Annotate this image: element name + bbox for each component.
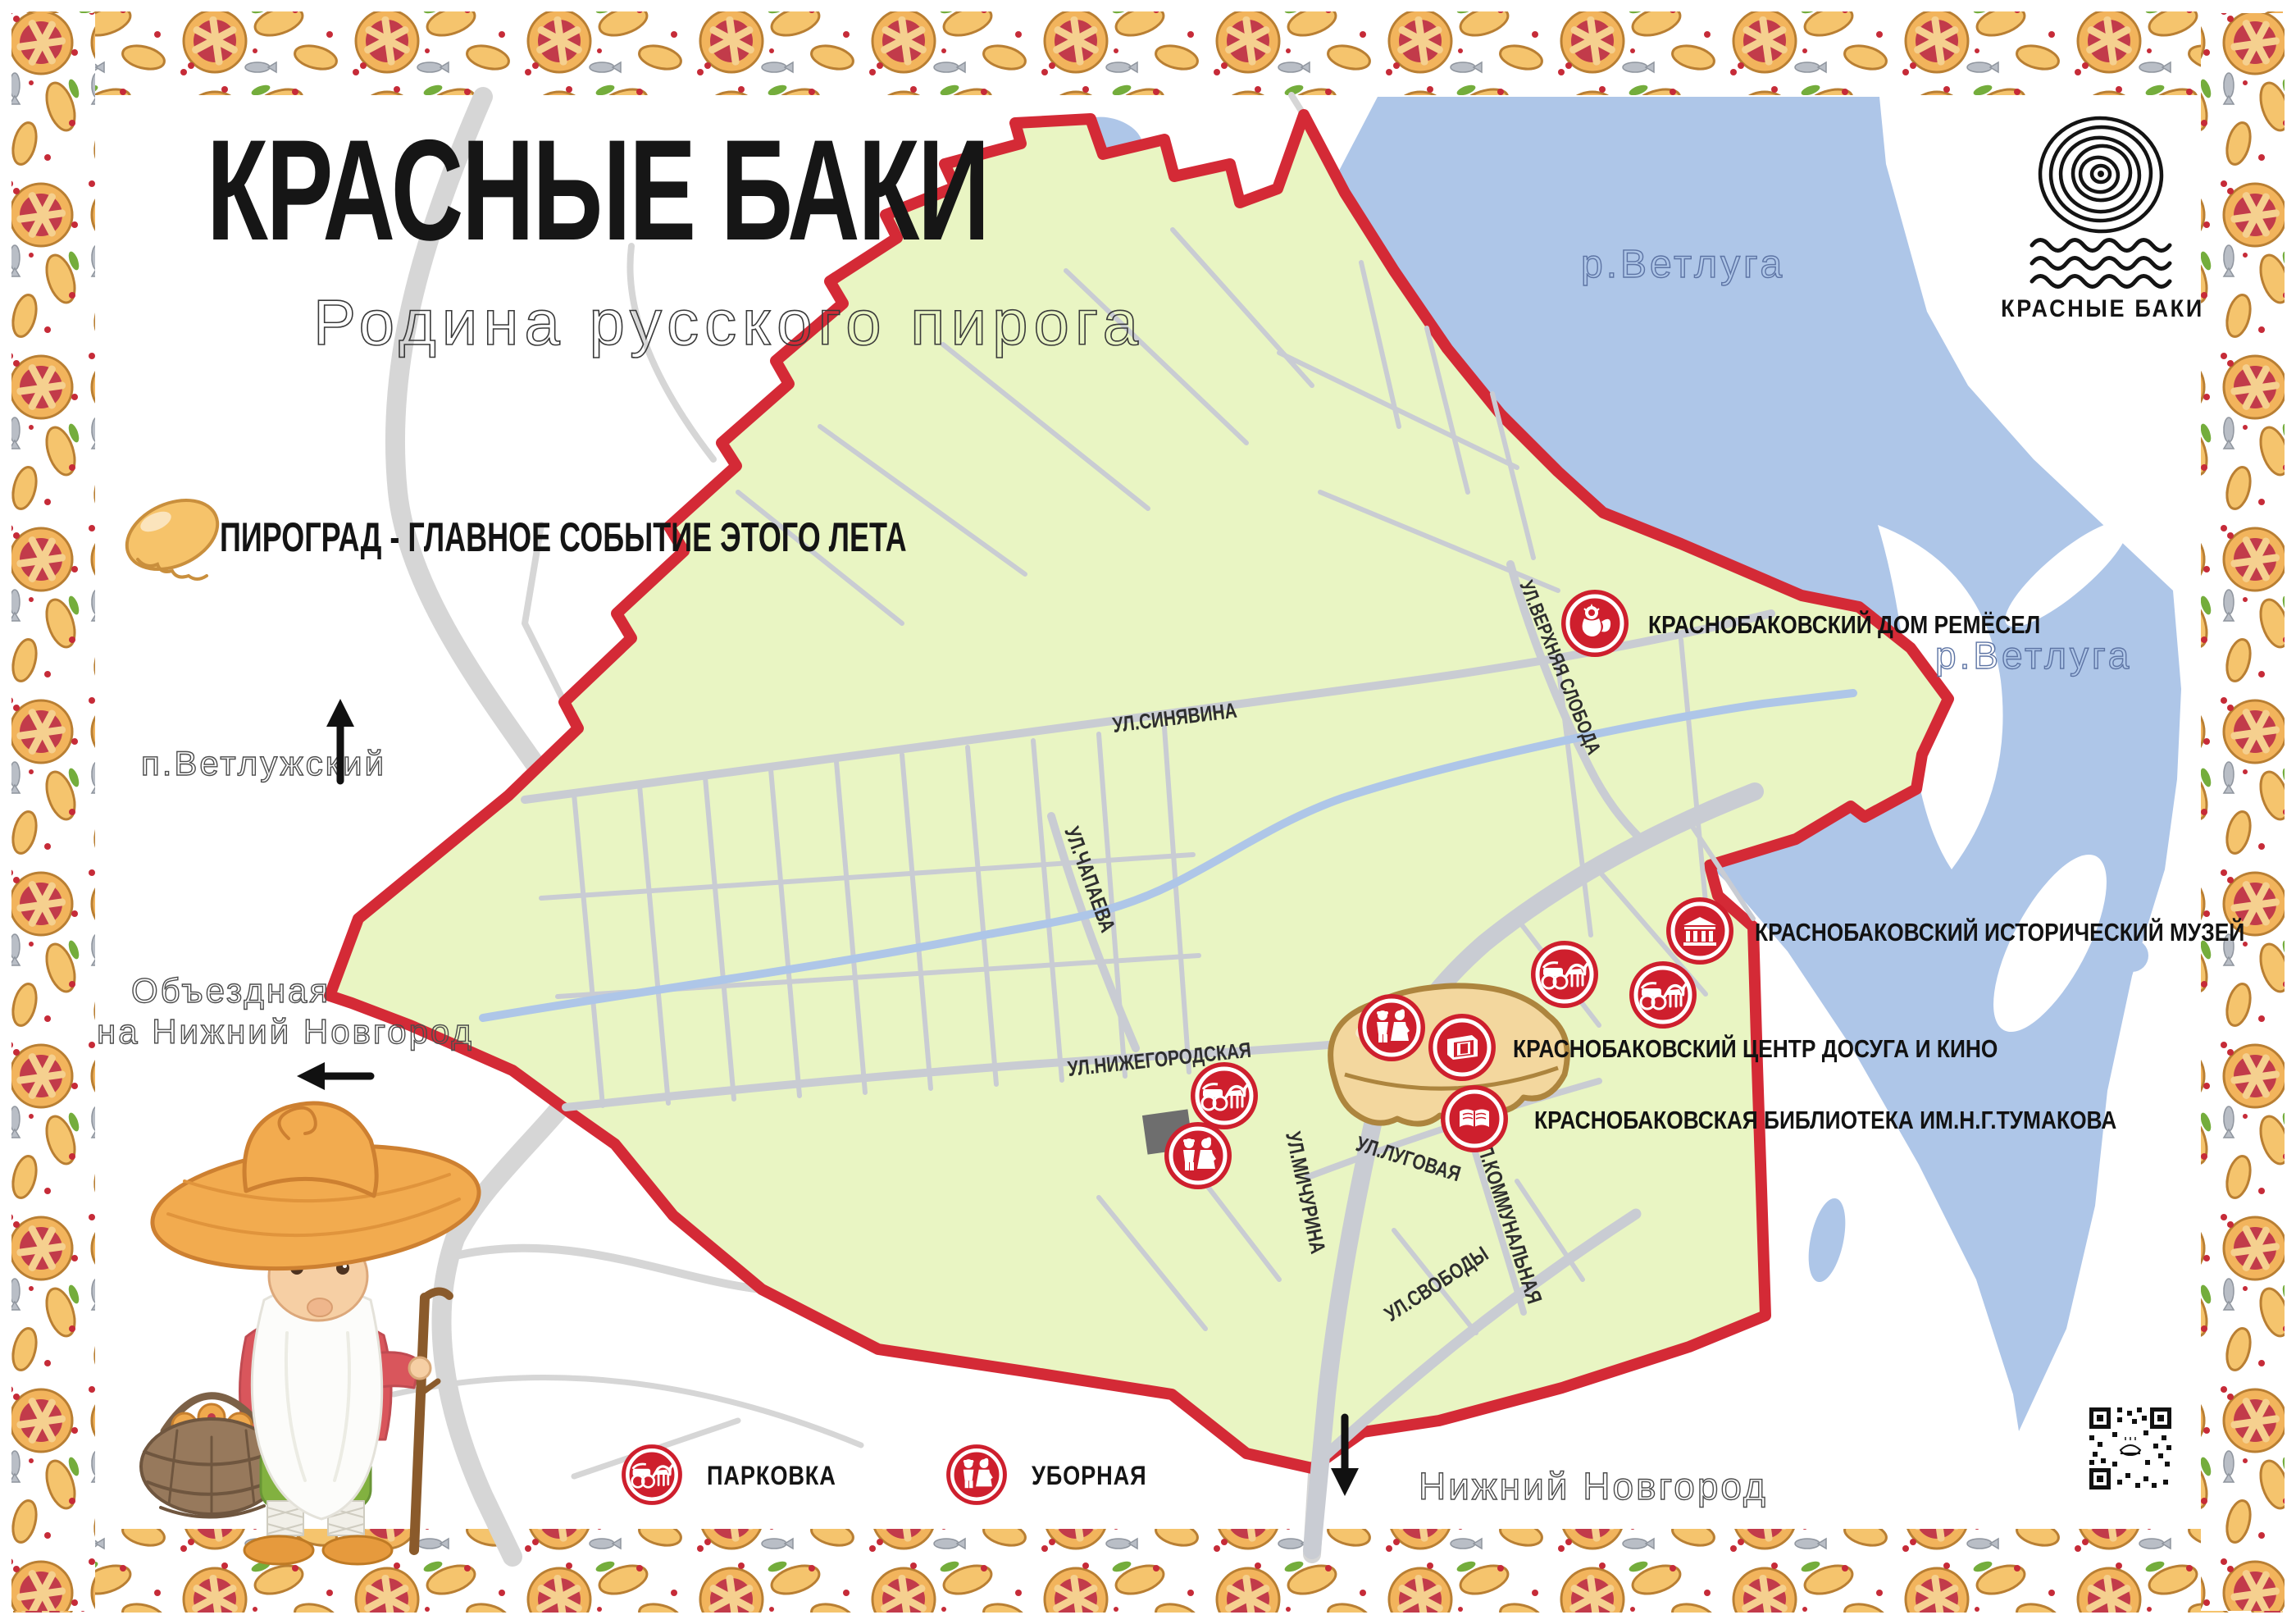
poi-marker-parking-1 [1531, 941, 1598, 1008]
tree-rings-icon [2035, 113, 2166, 236]
poi-marker-toilet-1 [1358, 994, 1425, 1061]
river-label-east: р.Ветлуга [1935, 634, 2132, 677]
qr-pie-icon [2118, 1436, 2143, 1461]
gnome-hand [409, 1357, 430, 1379]
direction-west-label-2: на Нижний Новгород [97, 1012, 474, 1051]
direction-west-label-1: Объездная [131, 971, 330, 1010]
water-waves-icon [2032, 240, 2170, 287]
gnome-staff [414, 1298, 425, 1550]
tourist-map-poster: УЛ.ВЕРХНЯЯ СЛОБОДА УЛ.СИНЯВИНА УЛ.ЧАПАЕВ… [0, 0, 2296, 1624]
legend-toilet-item: УБОРНАЯ [946, 1444, 1146, 1505]
direction-north-label: п.Ветлужский [141, 744, 386, 782]
poi-label-museum: КРАСНОБАКОВСКИЙ ИСТОРИЧЕСКИЙ МУЗЕЙ [1755, 917, 2244, 947]
pie-icon [116, 487, 229, 583]
tagline-label: ПИРОГРАД - ГЛАВНОЕ СОБЫТИЕ ЭТОГО ЛЕТА [220, 515, 907, 560]
poi-marker-parking-3 [1191, 1062, 1258, 1129]
poi-marker-parking-2 [1629, 961, 1697, 1029]
direction-south-label: Нижний Новгород [1419, 1465, 1768, 1508]
open-book-icon [1460, 1110, 1489, 1128]
page-title: КРАСНЫЕ БАКИ [207, 110, 988, 271]
arrow-left-icon [297, 1062, 371, 1090]
poi-label-library: КРАСНОБАКОВСКАЯ БИБЛИОТЕКА ИМ.Н.Г.ТУМАКО… [1534, 1106, 2116, 1134]
qr-code [2084, 1403, 2176, 1494]
poi-marker-toilet-2 [1164, 1122, 1232, 1189]
legend-toilet-label: УБОРНАЯ [1032, 1462, 1147, 1491]
legend-parking-item: ПАРКОВКА [622, 1444, 836, 1505]
brand-logo: КРАСНЫЕ БАКИ [2001, 113, 2204, 323]
poi-label-cinema: КРАСНОБАКОВСКИЙ ЦЕНТР ДОСУГА И КИНО [1513, 1033, 1998, 1064]
poi-label-crafts-house: КРАСНОБАКОВСКИЙ ДОМ РЕМЁСЕЛ [1648, 609, 2040, 640]
page-subtitle: Родина русского пирога [313, 286, 1144, 358]
brand-logo-label: КРАСНЫЕ БАКИ [2001, 295, 2204, 323]
river-label-top: р.Ветлуга [1581, 243, 1785, 286]
direction-north: п.Ветлужский [141, 699, 386, 782]
legend: ПАРКОВКА УБОРНАЯ [622, 1444, 1146, 1505]
legend-parking-label: ПАРКОВКА [707, 1462, 836, 1491]
cinema-building-icon [1447, 1035, 1478, 1060]
